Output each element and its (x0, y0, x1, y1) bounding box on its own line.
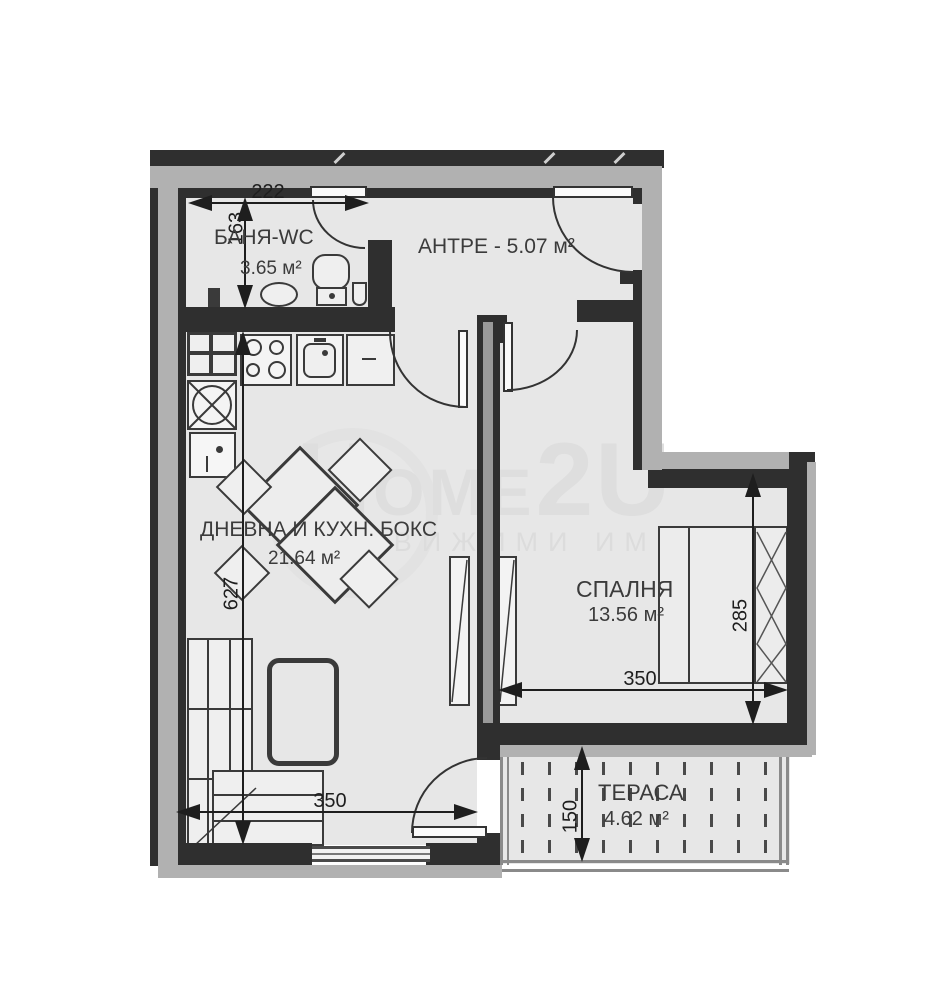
label-bedroom-area: 13.56 м² (588, 604, 664, 627)
label-entry: АНТРЕ - 5.07 м² (418, 235, 575, 259)
dim-terrace-depth: 150 (560, 792, 583, 842)
label-terrace-area: 4.62 м² (604, 808, 669, 831)
label-bathroom-area: 3.65 м² (240, 258, 302, 280)
label-bedroom: СПАЛНЯ (576, 576, 673, 603)
label-bathroom: БАНЯ-WC (214, 226, 314, 250)
label-living: ДНЕВНА И КУХН. БОКС (200, 518, 437, 542)
label-living-area: 21.64 м² (268, 548, 340, 570)
dim-bedroom-width: 350 (610, 668, 670, 691)
label-terrace: ТЕРАСА (598, 780, 684, 806)
dim-living-width: 350 (300, 790, 360, 813)
dim-living-height: 627 (221, 569, 244, 619)
doors-and-dimensions (0, 0, 928, 1000)
dim-bath-width: 222 (238, 181, 298, 204)
floor-plan: HOME2U НЕДВИЖИМИ ИМОТИ (0, 0, 928, 1000)
dim-bedroom-height: 285 (730, 591, 753, 641)
